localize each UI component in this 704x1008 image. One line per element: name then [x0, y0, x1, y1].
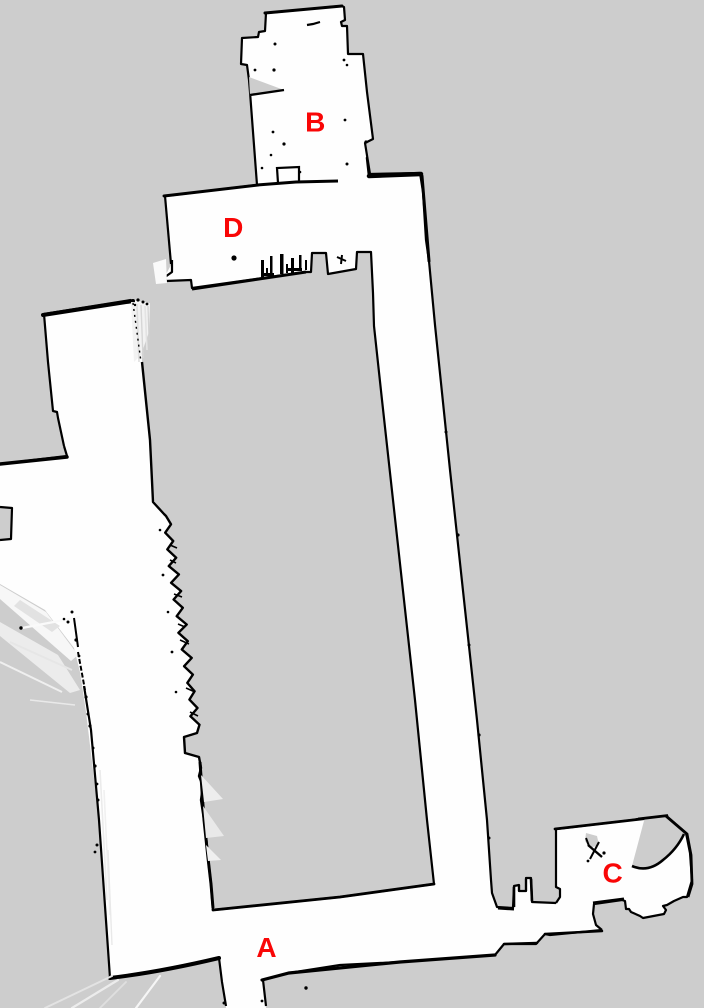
svg-text:A: A [256, 932, 276, 963]
svg-text:C: C [602, 857, 622, 888]
svg-text:B: B [305, 106, 325, 137]
svg-text:D: D [223, 212, 243, 243]
